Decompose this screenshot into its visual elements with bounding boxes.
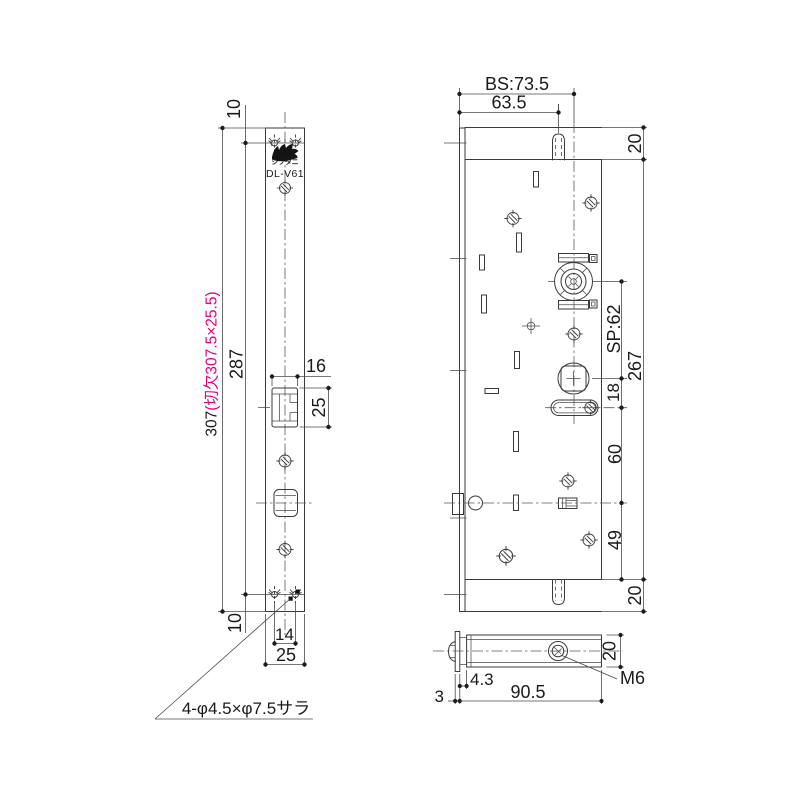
dim-latch-height: 25	[309, 397, 329, 417]
dim-bottom-offset: 10	[225, 613, 245, 633]
deadbolt-opening	[256, 490, 312, 517]
bottom-view: M6 4.3 3 90.5 20	[433, 632, 645, 707]
bottom-faceplate	[449, 632, 467, 672]
latch-opening	[258, 388, 298, 427]
dim-plate-thickness: 3	[435, 687, 444, 706]
dim-bottom-margin: 20	[625, 585, 645, 605]
dim-overall: 307(切欠307.5×25.5)	[203, 291, 221, 436]
thread-label: M6	[620, 668, 645, 688]
dim-top-margin: 20	[625, 133, 645, 153]
pivot-hole	[522, 318, 540, 334]
technical-drawing: シブタニ DL-V61	[0, 0, 800, 800]
dim-spindle-pitch: SP:62	[604, 304, 624, 353]
case-faceplate-edge	[444, 128, 467, 612]
cylinder-hole	[548, 254, 627, 310]
dim-case-depth: 90.5	[510, 682, 545, 702]
dim-latch-width: 16	[306, 356, 326, 376]
drawing-canvas: シブタニ DL-V61	[0, 0, 800, 800]
bottom-case-body	[433, 635, 623, 667]
dim-plate-width: 25	[276, 645, 296, 665]
front-view: シブタニ DL-V61	[155, 99, 332, 719]
dim-backset: BS:73.5	[485, 74, 549, 94]
bottom-mounting-tab	[553, 580, 565, 605]
case-screw-holes	[496, 194, 599, 565]
side-view: BS:73.5 63.5 20 267 20 SP:62 18 60 49	[444, 74, 647, 614]
latch-bolt-side	[444, 494, 627, 515]
dim-case-width: 20	[600, 641, 620, 661]
dim-hole-span: 287	[227, 349, 247, 379]
model-number: DL-V61	[266, 168, 304, 180]
dim-plate-to-case: 4.3	[470, 670, 494, 689]
dim-slot-to-center: 60	[605, 444, 625, 464]
hole-note: 4-φ4.5×φ7.5サラ	[182, 699, 310, 718]
dim-hole-pitch: 14	[275, 625, 294, 644]
dim-tab-offset: 63.5	[491, 93, 526, 113]
dim-top-offset: 10	[224, 99, 244, 119]
dim-body-height: 267	[625, 351, 645, 381]
dim-spindle-to-slot: 18	[604, 383, 623, 402]
brand-name: シブタニ	[271, 157, 298, 166]
dim-center-to-bottom: 49	[605, 530, 625, 550]
